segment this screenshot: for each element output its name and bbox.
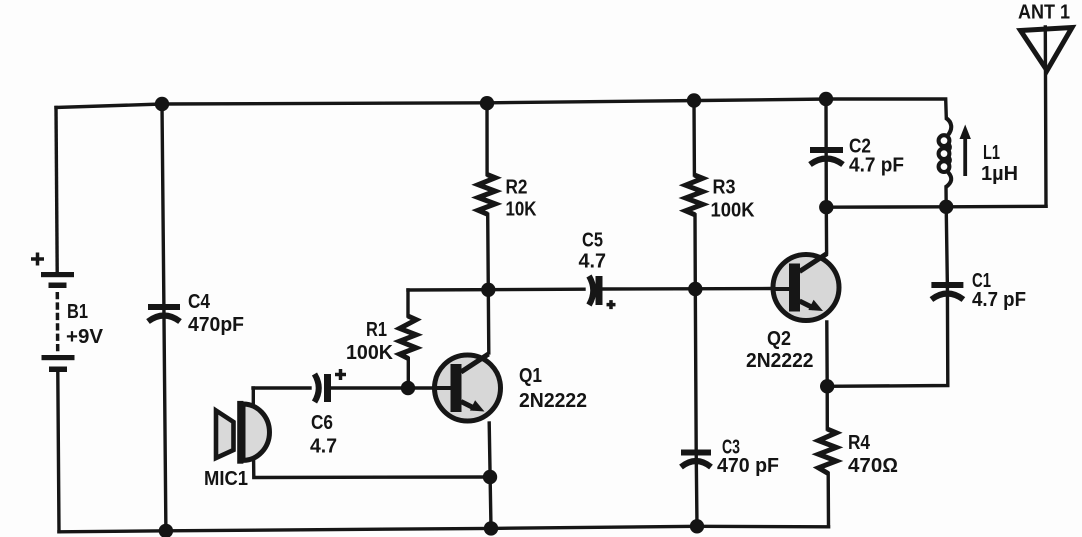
- svg-text:R3: R3: [713, 177, 736, 199]
- svg-text:MIC1: MIC1: [204, 468, 248, 490]
- svg-text:4.7: 4.7: [579, 251, 607, 273]
- svg-text:Q1: Q1: [519, 365, 542, 387]
- svg-text:4.7 pF: 4.7 pF: [972, 289, 1026, 311]
- svg-text:470 pF: 470 pF: [717, 455, 779, 477]
- svg-text:10K: 10K: [506, 199, 537, 221]
- svg-text:100K: 100K: [346, 342, 394, 364]
- svg-text:1µH: 1µH: [981, 163, 1018, 185]
- svg-text:2N2222: 2N2222: [746, 350, 814, 372]
- svg-text:C5: C5: [582, 230, 603, 252]
- svg-text:R4: R4: [848, 432, 871, 454]
- svg-text:B1: B1: [67, 301, 88, 323]
- svg-text:ANT 1: ANT 1: [1018, 2, 1070, 24]
- svg-text:470Ω: 470Ω: [848, 455, 898, 477]
- svg-text:2N2222: 2N2222: [519, 390, 587, 412]
- svg-text:4.7: 4.7: [310, 436, 337, 458]
- svg-text:L1: L1: [983, 142, 1000, 164]
- svg-text:C4: C4: [188, 291, 211, 313]
- svg-text:4.7 pF: 4.7 pF: [849, 155, 904, 177]
- svg-text:100K: 100K: [711, 200, 756, 222]
- svg-text:R2: R2: [506, 177, 528, 199]
- svg-text:+9V: +9V: [66, 326, 104, 348]
- svg-text:R1: R1: [366, 319, 387, 341]
- svg-text:C6: C6: [311, 412, 333, 434]
- svg-text:470pF: 470pF: [188, 314, 244, 336]
- svg-text:Q2: Q2: [767, 328, 791, 350]
